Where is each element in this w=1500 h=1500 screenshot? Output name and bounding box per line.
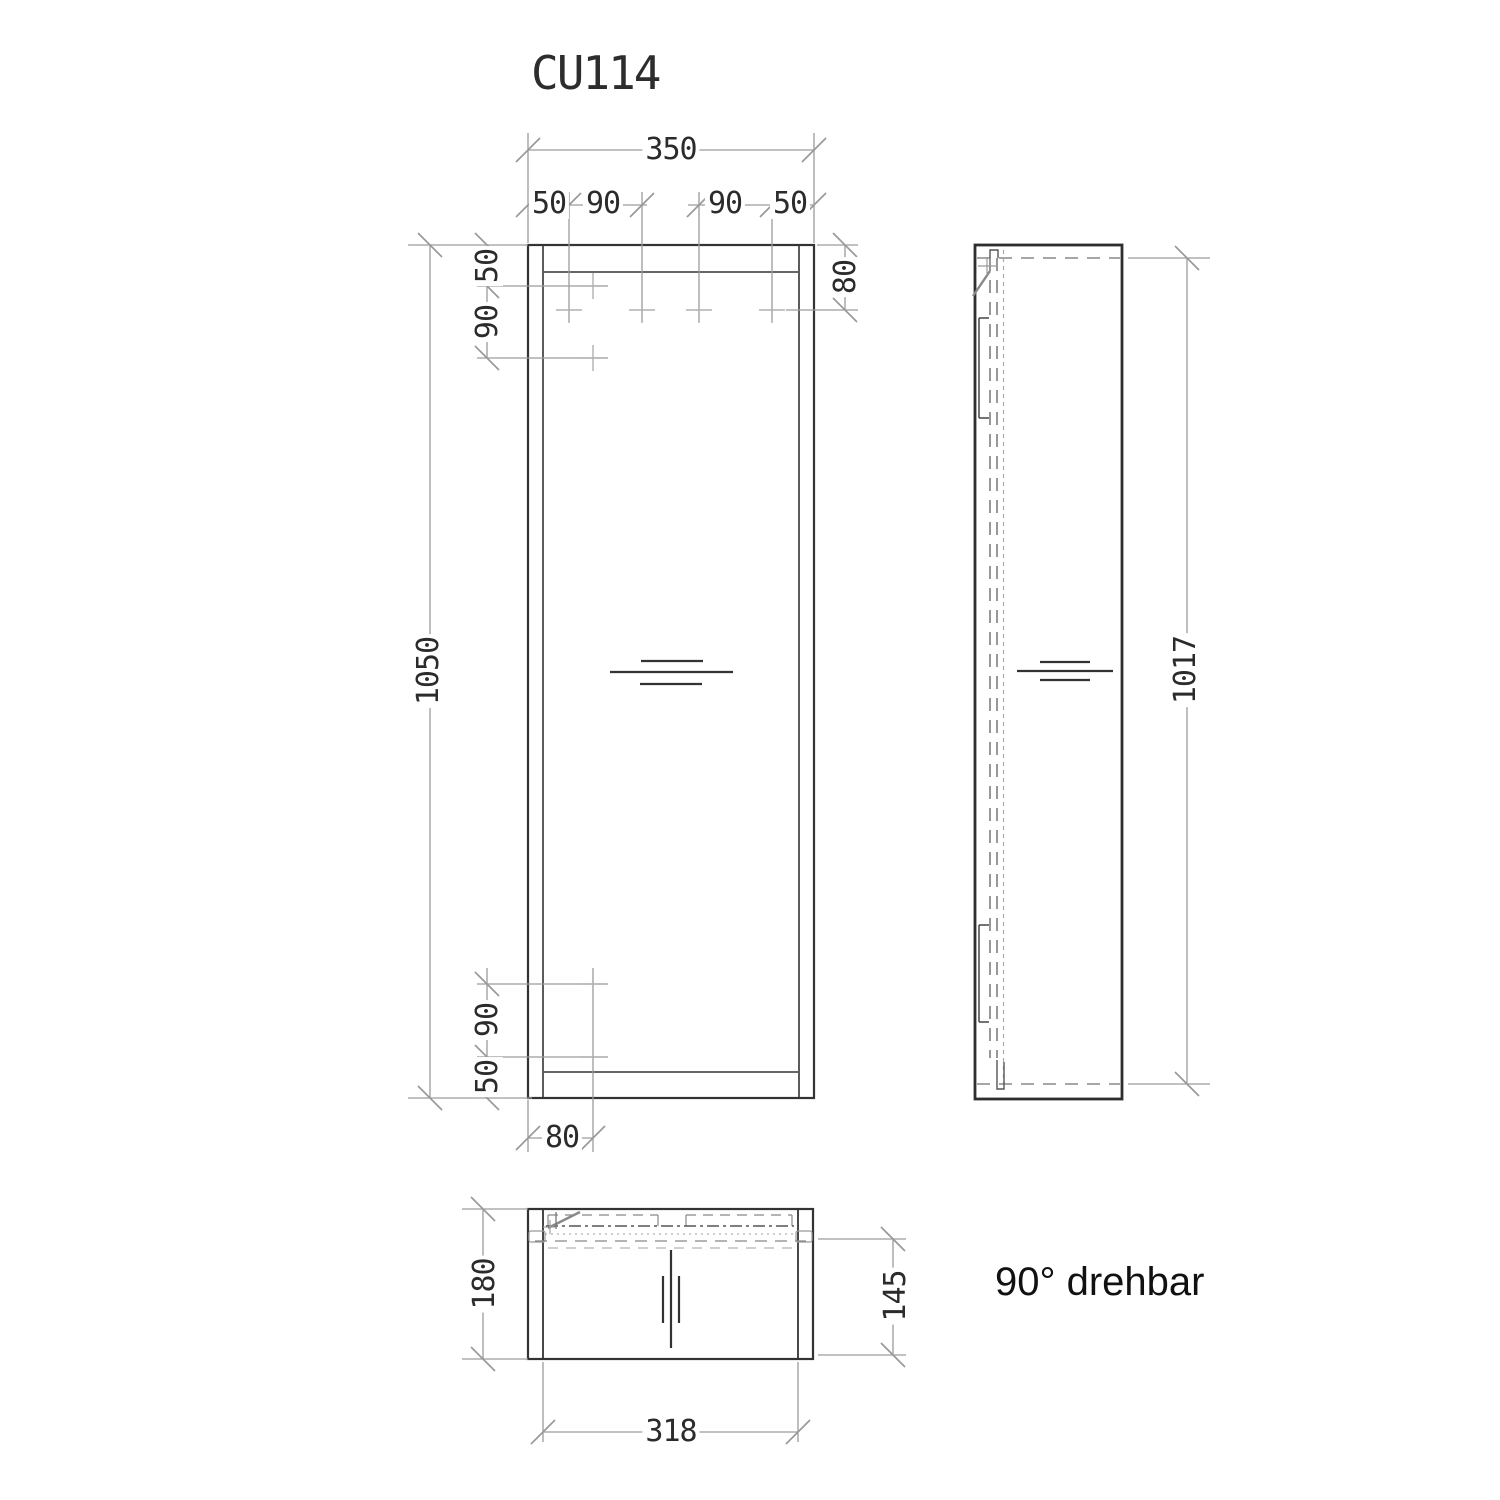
- side-hidden-door-lines: [977, 250, 1120, 1089]
- drawing-line-work: [0, 0, 1500, 1500]
- dim-front-chain-top-2: 90: [583, 189, 623, 219]
- dim-plan-glass-depth: 145: [881, 1267, 911, 1324]
- dim-front-chain-top-1: 50: [529, 189, 569, 219]
- dim-plan-inner-width: 318: [642, 1417, 699, 1447]
- dim-front-left-chain-bottom-1: 90: [473, 1000, 503, 1040]
- dim-front-total-height: 1050: [414, 634, 444, 708]
- side-hinge-detail: [973, 257, 996, 1022]
- dim-front-offset-bottom: 80: [542, 1123, 582, 1153]
- dim-front-offset-right: 80: [831, 257, 861, 297]
- rotation-note: 90° drehbar: [995, 1262, 1204, 1302]
- plan-hidden-detail-lines: [529, 1215, 812, 1248]
- dim-side-door-height: 1017: [1171, 633, 1201, 707]
- dim-front-left-chain-bottom-2: 50: [473, 1057, 503, 1097]
- dim-plan-total-depth: 180: [470, 1255, 500, 1312]
- front-tick-marks: [418, 138, 857, 1150]
- drawing-title: CU114: [531, 50, 659, 96]
- front-door-handle: [610, 661, 733, 684]
- plan-door-handle: [663, 1250, 679, 1348]
- side-door-handle: [1017, 662, 1113, 680]
- dim-front-chain-top-3: 90: [705, 189, 745, 219]
- dim-front-left-chain-top-1: 50: [473, 246, 503, 286]
- dim-front-chain-top-4: 50: [770, 189, 810, 219]
- plan-tick-marks: [471, 1197, 905, 1444]
- dim-front-left-chain-top-2: 90: [473, 302, 503, 342]
- technical-drawing-sheet: CU114 350 50 90 90 50 80 1050 50 90 90 5…: [0, 0, 1500, 1500]
- dim-front-total-width: 350: [642, 135, 699, 165]
